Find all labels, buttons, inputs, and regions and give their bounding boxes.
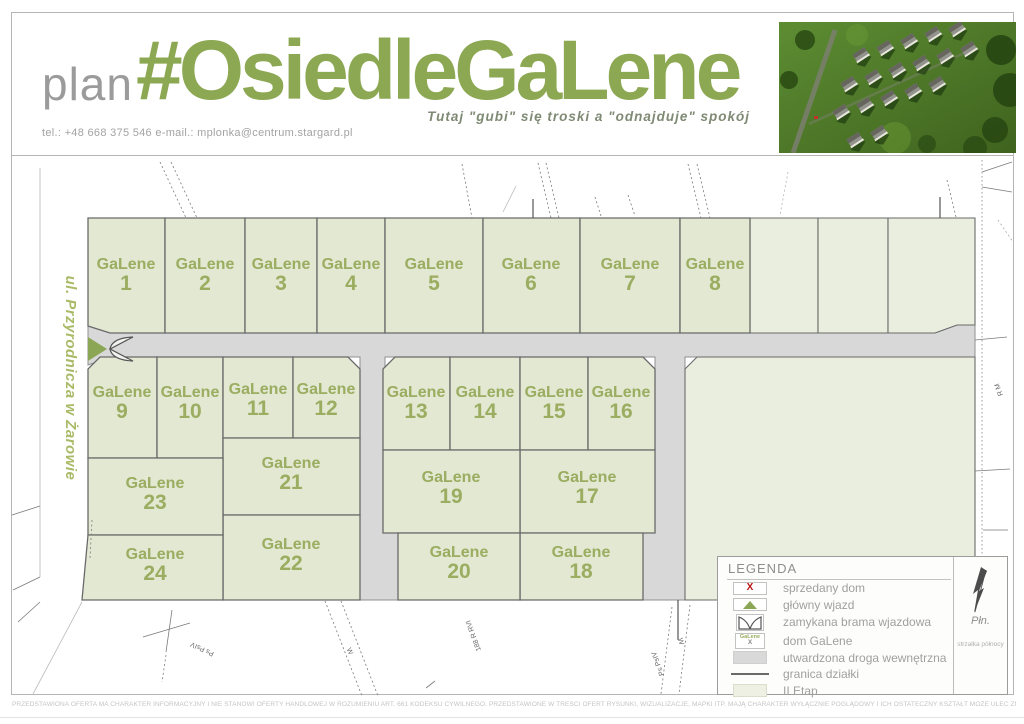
plot-galene-2-label: GaLene2 [176, 257, 235, 295]
internal-road-icon [733, 651, 767, 664]
header-divider [11, 155, 1013, 156]
street-lines [12, 168, 92, 694]
plot-galene-7-label: GaLene7 [601, 257, 660, 295]
sold-x-icon: X [747, 583, 754, 593]
legend-row-sold: X sprzedany dom [727, 580, 953, 596]
plot-galene-1-label: GaLene1 [97, 257, 156, 295]
north-caption: strzałka północy [957, 641, 1004, 648]
plot-galene-8-label: GaLene8 [686, 257, 745, 295]
legend-row-gate: zamykana brama wjazdowa [727, 613, 953, 632]
phase2-plot [750, 218, 818, 333]
tagline: Tutaj "gubi" się troski a "odnajduje" sp… [427, 109, 750, 124]
aerial-photo [779, 22, 1016, 153]
north-label: Płn. [971, 615, 990, 627]
disclaimer: PRZEDSTAWIONA OFERTA MA CHARAKTER INFORM… [12, 701, 1016, 708]
plot-galene-22-label: GaLene22 [262, 537, 321, 575]
legend-row-entrance: główny wjazd [727, 596, 953, 612]
entrance-gate-icon [736, 614, 764, 631]
street-label: ul. Przyrodnicza w Żarowie [59, 248, 79, 508]
legend-label: główny wjazd [773, 598, 854, 612]
main-entrance-icon [743, 601, 757, 609]
survey-text: W [676, 637, 684, 645]
plan-page: plan #OsiedleGaLene Tutaj "gubi" się tro… [0, 0, 1024, 724]
plot-galene-17-label: GaLene17 [558, 470, 617, 508]
plot-galene-12-label: GaLene12 [297, 382, 356, 420]
legend-row-road: utwardzona droga wewnętrzna [727, 650, 953, 666]
page-title: #OsiedleGaLene [136, 22, 738, 119]
legend: LEGENDA X sprzedany dom główny wjazd zam… [717, 556, 1008, 695]
north-panel: Płn. strzałka północy [953, 557, 1007, 694]
plot-galene-24-label: GaLene24 [126, 547, 185, 585]
legend-row-phase2: II Etap [727, 683, 953, 699]
plot-boundary-icon [731, 673, 769, 675]
plot-galene-5-label: GaLene5 [405, 257, 464, 295]
phase2-plot [818, 218, 888, 333]
plot-galene-15-label: GaLene15 [525, 385, 584, 423]
plot-galene-10-label: GaLene10 [161, 385, 220, 423]
plot-galene-6-label: GaLene6 [502, 257, 561, 295]
plot-galene-23-label: GaLene23 [126, 476, 185, 514]
plot-galene-14-label: GaLene14 [456, 385, 515, 423]
legend-label: sprzedany dom [773, 581, 865, 595]
legend-label: dom GaLene [773, 634, 852, 648]
plot-galene-11-label: GaLene11 [229, 382, 288, 420]
survey-dashed-lines-top [160, 162, 956, 218]
legend-label: granica działki [773, 667, 859, 681]
plot-galene-21-label: GaLene21 [262, 456, 321, 494]
plot-galene-13-label: GaLene13 [387, 385, 446, 423]
north-arrow-icon [970, 567, 992, 613]
legend-row-house: GaLeneX dom GaLene [727, 632, 953, 650]
plot-galene-3-label: GaLene3 [252, 257, 311, 295]
phase2-icon [733, 684, 767, 697]
plot-galene-9-label: GaLene9 [93, 385, 152, 423]
legend-title: LEGENDA [727, 560, 951, 580]
legend-row-boundary: granica działki [727, 666, 953, 682]
plan-word: plan [42, 57, 133, 111]
legend-label: utwardzona droga wewnętrzna [773, 651, 946, 665]
plot-galene-18-label: GaLene18 [552, 545, 611, 583]
legend-label: II Etap [773, 684, 818, 698]
contact-info: tel.: +48 668 375 546 e-mail.: mplonka@c… [42, 127, 353, 139]
galene-house-icon: GaLeneX [735, 633, 765, 649]
plot-galene-16-label: GaLene16 [592, 385, 651, 423]
phase2-plot [888, 218, 975, 333]
page-edge-line [0, 717, 1024, 718]
plot-galene-4-label: GaLene4 [322, 257, 381, 295]
plot-galene-20-label: GaLene20 [430, 545, 489, 583]
legend-label: zamykana brama wjazdowa [773, 615, 931, 629]
plot-galene-19-label: GaLene19 [422, 470, 481, 508]
